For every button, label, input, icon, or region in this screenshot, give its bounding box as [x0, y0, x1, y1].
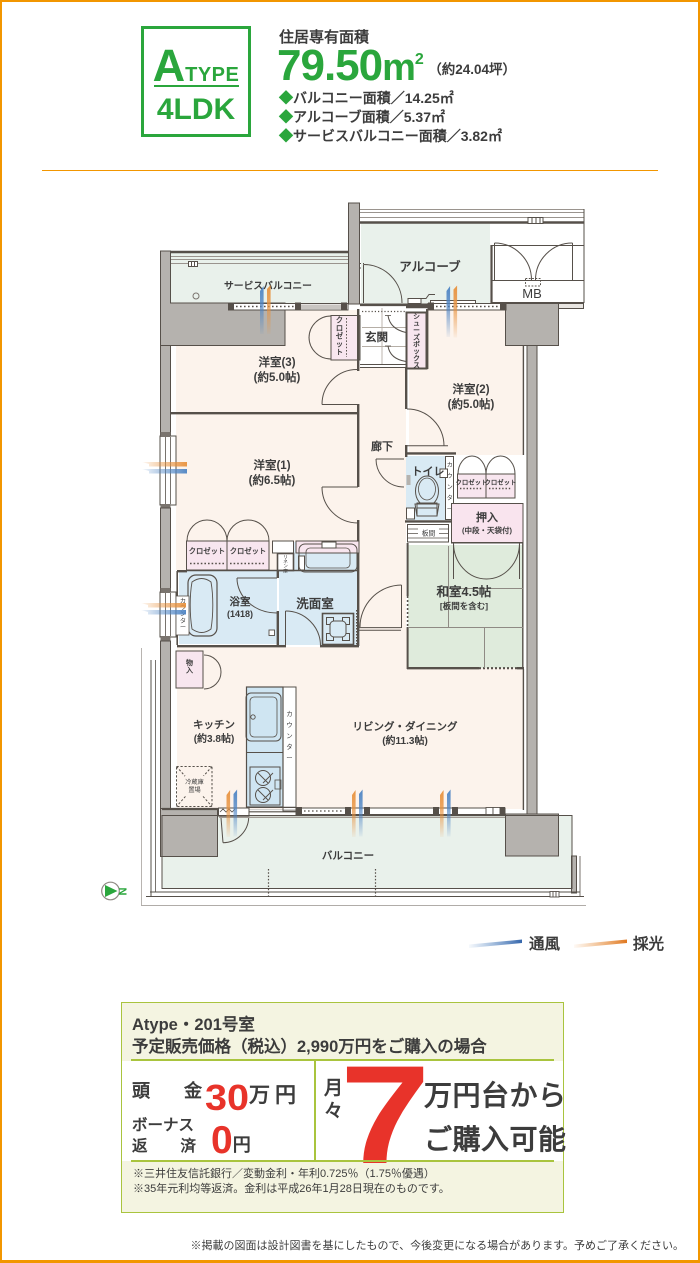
svg-text:シューズボックス: シューズボックス: [413, 313, 420, 370]
svg-text:クロゼット: クロゼット: [485, 478, 517, 487]
svg-text:和室4.5帖: 和室4.5帖: [436, 584, 492, 599]
svg-text:浴室: 浴室: [230, 595, 251, 608]
svg-text:クロゼット: クロゼット: [189, 547, 225, 556]
svg-text:リビング・ダイニング: リビング・ダイニング: [353, 720, 458, 733]
svg-text:廊下: 廊下: [371, 439, 393, 453]
svg-text:キッチン: キッチン: [193, 719, 235, 731]
svg-text:アルコーブ: アルコーブ: [399, 259, 461, 274]
svg-text:クロゼット: クロゼット: [336, 316, 344, 357]
svg-text:(約6.5帖): (約6.5帖): [249, 473, 296, 487]
svg-text:(約3.8帖): (約3.8帖): [194, 732, 235, 745]
svg-text:冷蔵庫: 冷蔵庫: [185, 778, 204, 786]
svg-text:通風: 通風: [529, 935, 561, 953]
svg-text:カウンター: カウンター: [286, 710, 292, 762]
svg-text:洋室(2): 洋室(2): [452, 382, 489, 396]
svg-text:バルコニー: バルコニー: [322, 850, 374, 862]
svg-text:置場: 置場: [188, 786, 200, 794]
svg-text:洋室(1): 洋室(1): [253, 458, 290, 472]
svg-text:(約11.3帖): (約11.3帖): [382, 734, 428, 747]
svg-text:洋室(3): 洋室(3): [258, 355, 295, 369]
svg-text:[板間を含む]: [板間を含む]: [440, 601, 488, 611]
svg-text:クロゼット: クロゼット: [230, 547, 266, 556]
svg-text:洗面室: 洗面室: [296, 596, 334, 611]
svg-text:N: N: [116, 888, 128, 896]
svg-text:(約5.0帖): (約5.0帖): [254, 370, 301, 384]
svg-text:物入: 物入: [185, 658, 193, 675]
svg-text:クロゼット: クロゼット: [456, 478, 488, 487]
svg-text:採光: 採光: [633, 934, 665, 953]
svg-text:リネン庫: リネン庫: [283, 556, 288, 575]
svg-text:(中段・天袋付): (中段・天袋付): [462, 525, 512, 535]
svg-text:玄関: 玄関: [365, 330, 388, 344]
svg-text:(1418): (1418): [227, 609, 253, 619]
svg-text:板間: 板間: [422, 529, 436, 538]
svg-text:押入: 押入: [476, 510, 498, 524]
svg-text:(約5.0帖): (約5.0帖): [448, 397, 495, 411]
svg-text:MB: MB: [522, 286, 542, 301]
svg-text:トイレ: トイレ: [412, 465, 445, 478]
